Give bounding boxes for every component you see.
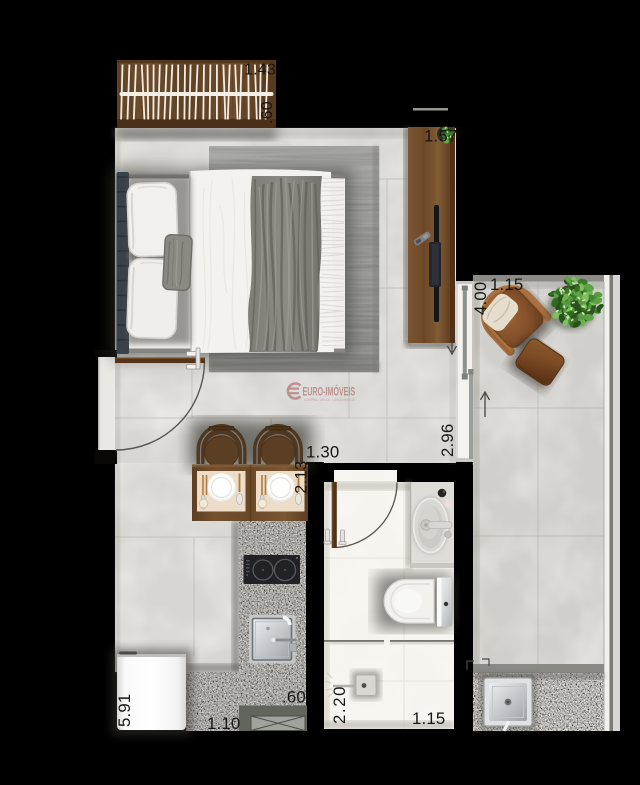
svg-text:4.00: 4.00 xyxy=(471,282,490,315)
svg-text:1.15: 1.15 xyxy=(490,275,523,294)
svg-text:1.57: 1.57 xyxy=(424,127,457,146)
svg-text:2.13: 2.13 xyxy=(292,461,311,494)
svg-text:2.20: 2.20 xyxy=(330,685,349,724)
svg-text:.60: .60 xyxy=(259,101,276,124)
svg-text:2.96: 2.96 xyxy=(438,424,457,457)
svg-text:COMPRA - VENDA - LANÇAMENTOS: COMPRA - VENDA - LANÇAMENTOS xyxy=(304,398,356,403)
svg-text:5.91: 5.91 xyxy=(115,694,134,727)
svg-text:1.30: 1.30 xyxy=(306,443,339,462)
svg-text:1.10: 1.10 xyxy=(207,714,240,733)
svg-text:.60: .60 xyxy=(282,688,306,707)
svg-text:1.15: 1.15 xyxy=(412,709,445,728)
svg-text:1.43: 1.43 xyxy=(244,62,276,79)
